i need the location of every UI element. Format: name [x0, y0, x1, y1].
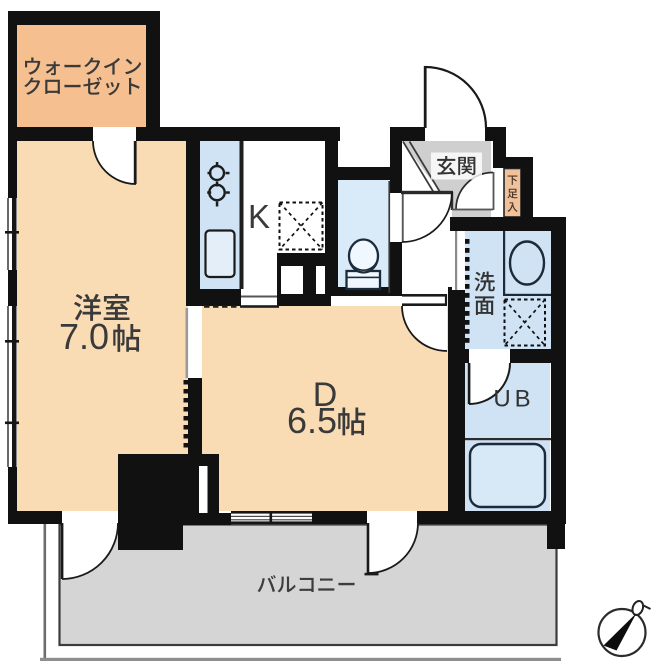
svg-text:7.0: 7.0	[59, 316, 109, 357]
svg-text:6.5: 6.5	[287, 400, 337, 441]
svg-text:K: K	[248, 198, 270, 235]
svg-text:UB: UB	[493, 386, 534, 413]
